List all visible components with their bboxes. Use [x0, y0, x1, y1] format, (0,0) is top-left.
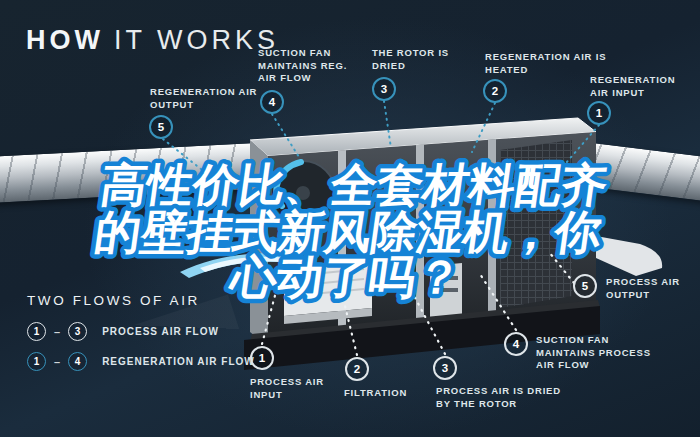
marker-5-regeneration: 5	[149, 115, 173, 139]
legend-title: TWO FLOWS OF AIR	[27, 293, 200, 308]
marker-3-regeneration: 3	[372, 77, 396, 101]
outlet-elbow	[596, 236, 662, 276]
legend-label-process: PROCESS AIR FLOW	[102, 326, 219, 337]
machine-interior	[271, 139, 572, 327]
label-suction-fan-process: SUCTION FAN MAINTAINS PROCESS AIR FLOW	[536, 334, 654, 372]
spiral-duct-left	[0, 143, 257, 203]
page-title-bold: HOW	[26, 25, 104, 55]
legend-label-regeneration: REGENERATION AIR FLOW	[102, 356, 255, 367]
label-rotor-dried: THE ROTOR IS DRIED	[372, 47, 456, 72]
label-suction-fan-reg: SUCTION FAN MAINTAINS REG. AIR FLOW	[258, 47, 360, 85]
legend-dash: –	[54, 326, 60, 338]
marker-2-process: 2	[345, 357, 369, 381]
machine-casing	[250, 118, 596, 346]
legend-marker: 3	[68, 322, 87, 341]
marker-4-process: 4	[504, 332, 528, 356]
label-regeneration-air-input: REGENERATION AIR INPUT	[590, 74, 690, 99]
filter-drawer	[284, 260, 372, 324]
label-filtration: FILTRATION	[344, 387, 436, 400]
control-box	[430, 263, 462, 319]
legend-dash: –	[54, 356, 60, 368]
label-regeneration-air-heated: REGENERATION AIR IS HEATED	[485, 51, 617, 76]
legend-marker: 1	[27, 352, 46, 371]
legend-row-process: 1 – 3 PROCESS AIR FLOW	[27, 322, 219, 341]
legend-marker: 4	[68, 352, 87, 371]
page-title-light: IT WORKS	[114, 25, 279, 55]
infographic-canvas: HOWIT WORKS REGENERATION AIR OUTPUT 5 SU…	[0, 0, 700, 437]
label-regeneration-air-output: REGENERATION AIR OUTPUT	[150, 86, 260, 111]
divider-panel	[488, 139, 496, 313]
page-title: HOWIT WORKS	[26, 25, 279, 56]
divider-panel	[338, 150, 346, 327]
fan-wheel	[271, 161, 335, 225]
label-process-air-output: PROCESS AIR OUTPUT	[606, 276, 700, 301]
marker-2-regeneration: 2	[483, 79, 507, 103]
marker-4-regeneration: 4	[260, 90, 284, 114]
legend-marker: 1	[27, 322, 46, 341]
spiral-duct-right	[546, 138, 700, 202]
legend-row-regeneration: 1 – 4 REGENERATION AIR FLOW	[27, 352, 255, 371]
label-process-air-dried: PROCESS AIR IS DRIED BY THE ROTOR	[436, 385, 564, 410]
marker-1-regeneration: 1	[587, 101, 611, 125]
label-process-air-input: PROCESS AIR INPUT	[250, 376, 342, 401]
headline-line-2: 的壁挂式新风除湿机，你	[92, 205, 605, 259]
marker-5-process: 5	[573, 274, 597, 298]
headline-line-3: 心动了吗？	[225, 250, 465, 304]
marker-3-process: 3	[433, 356, 457, 380]
air-swoosh	[180, 253, 295, 278]
divider-panel	[416, 144, 424, 320]
